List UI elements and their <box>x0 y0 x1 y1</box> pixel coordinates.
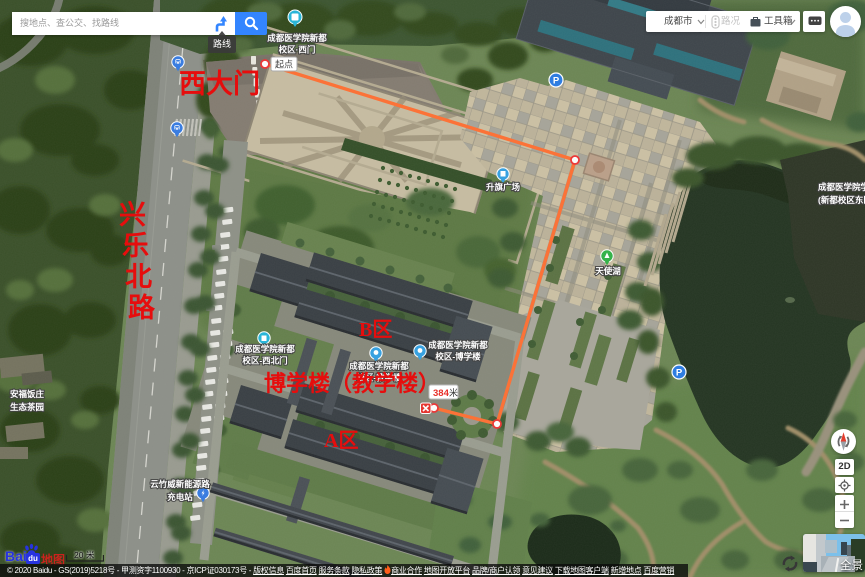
svg-text:博学楼（教学楼）: 博学楼（教学楼） <box>264 371 440 396</box>
svg-text:P: P <box>553 76 560 87</box>
svg-text:起点: 起点 <box>275 60 293 70</box>
svg-text:B区: B区 <box>359 319 392 341</box>
svg-text:校区·西门: 校区·西门 <box>279 45 316 55</box>
svg-text:充电站: 充电站 <box>167 492 193 502</box>
svg-text:A区: A区 <box>324 430 358 452</box>
svg-text:成都医学院新都: 成都医学院新都 <box>349 361 409 371</box>
svg-text:校区-西北门: 校区-西北门 <box>242 356 287 366</box>
svg-text:米: 米 <box>449 387 458 398</box>
svg-text:升旗广场: 升旗广场 <box>486 182 521 192</box>
svg-text:西大门: 西大门 <box>179 69 260 99</box>
svg-text:生态茶园: 生态茶园 <box>10 402 44 412</box>
svg-text:(新都校区东区): (新都校区东区) <box>818 195 865 205</box>
svg-text:成都医学院新都: 成都医学院新都 <box>428 340 488 350</box>
svg-text:校区-博学楼: 校区-博学楼 <box>435 352 481 362</box>
svg-text:成都医学院学生公: 成都医学院学生公 <box>818 182 865 192</box>
svg-text:成都医学院新都: 成都医学院新都 <box>235 344 295 354</box>
svg-text:北: 北 <box>125 262 152 292</box>
svg-text:云竹威新能源路: 云竹威新能源路 <box>150 479 210 489</box>
svg-text:路: 路 <box>128 292 156 323</box>
svg-text:天使湖: 天使湖 <box>595 266 621 276</box>
svg-text:兴: 兴 <box>119 200 146 230</box>
svg-text:P: P <box>676 368 683 379</box>
svg-text:乐: 乐 <box>122 231 149 261</box>
svg-text:成都医学院新都: 成都医学院新都 <box>267 33 327 43</box>
svg-text:安福饭庄: 安福饭庄 <box>10 389 45 399</box>
